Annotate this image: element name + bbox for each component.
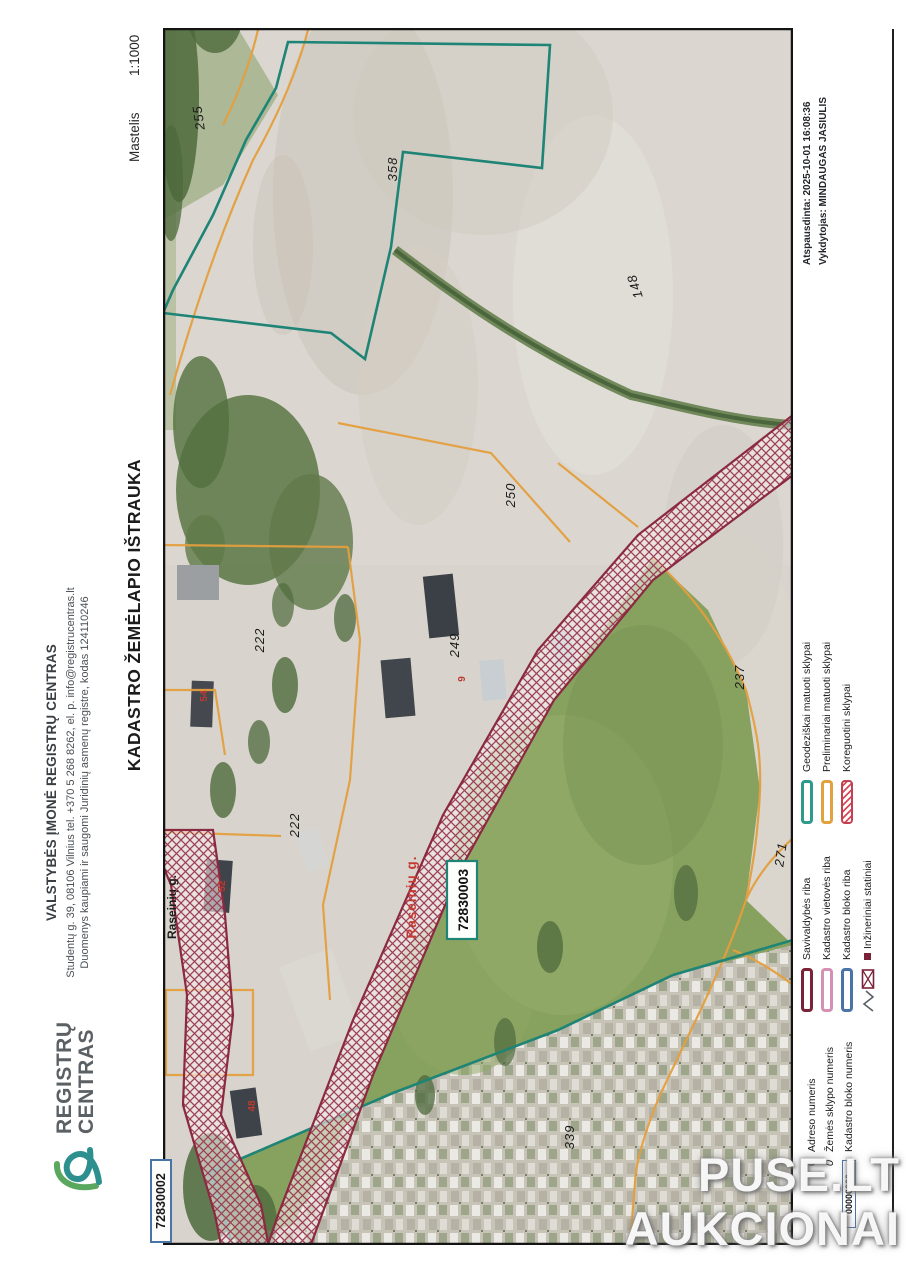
legend-inzineriniai: Inžineriniai statiniai [861,860,875,1012]
block-id-current-text: 72830003 [455,869,471,932]
address-label: 9 [457,676,468,682]
registru-centras-logo-icon [50,1142,102,1194]
parcel-label: 237 [732,665,747,691]
savivaldybes-riba-swatch [801,968,813,1012]
legend-preliminariai: Preliminariai matuoti sklypai [821,642,833,824]
logo-text: REGISTRŲ CENTRAS [54,1021,98,1134]
legend-geodeziskai: Geodeziškai matuoti sklypai [801,642,813,824]
block-id-neighbor: 72830002 [150,1159,172,1243]
watermark: PUSE.LT AUKCIONAI [625,1148,900,1256]
parcel-label: 339 [562,1125,577,1150]
legend-adreso-label: Adreso numeris [806,1078,818,1152]
preliminariai-label: Preliminariai matuoti sklypai [821,642,833,772]
block-id-neighbor-text: 72830002 [154,1173,168,1229]
legend-koreguotini: Koreguotini sklypai [841,684,853,824]
print-info: Atspausdinta: 2025-10-01 16:08:36 Vykdyt… [800,97,831,265]
address-label: 54 [199,690,210,702]
savivaldybes-riba-label: Savivaldybės riba [801,878,813,960]
inzineriniai-text: Inžineriniai statiniai [862,860,874,949]
legend-savivaldybes-riba: Savivaldybės riba [801,878,813,1012]
operator-name: Vykdytojas: MINDAUGAS JASIULIS [816,97,832,265]
inzineriniai-label: Inžineriniai statiniai [862,860,874,960]
parcel-label: 250 [503,483,518,509]
block-id-current: 72830003 [447,861,477,939]
screenshot-root: { "logo": {"line1": "REGISTRŲ", "line2":… [0,0,906,1280]
legend-bloko-riba: Kadastro bloko riba [841,870,853,1012]
koreguotini-swatch [841,780,853,824]
cadastral-map: 255 358 148 250 249 237 222 222 271 339 … [163,28,793,1245]
scale-value: 1:1000 [127,35,142,76]
legend-bottom-rule [892,29,894,1245]
company-registry-note: Duomenys kaupiami ir saugomi Juridinių a… [78,560,92,1005]
building-square-icon [864,953,871,960]
page-title: KADASTRO ŽEMĖLAPIO IŠTRAUKA [124,450,145,780]
legend-vietoves-riba: Kadastro vietovės riba [821,856,833,1012]
address-label: 52 [217,880,228,892]
street-label-black: Raseinių g. [165,875,179,939]
company-header: VALSTYBĖS ĮMONĖ REGISTRŲ CENTRAS Student… [44,560,92,1005]
address-label: 48 [247,1100,258,1112]
rotated-sheet: REGISTRŲ CENTRAS VALSTYBĖS ĮMONĖ REGISTR… [0,0,906,1280]
watermark-line1: PUSE.LT [625,1148,900,1202]
legend-sklypo-label: Žemės sklypo numeris [824,1047,836,1152]
koreguotini-label: Koreguotini sklypai [841,684,853,772]
parcel-label: 249 [447,633,462,659]
scale-label: Mastelis [127,112,142,162]
vietoves-riba-label: Kadastro vietovės riba [821,856,833,960]
street-label-red: Raseinių g. [404,855,419,938]
company-name: VALSTYBĖS ĮMONĖ REGISTRŲ CENTRAS [44,560,59,1005]
bloko-riba-swatch [841,968,853,1012]
parcel-label: 222 [287,813,302,839]
logo-line1: REGISTRŲ [54,1021,76,1134]
parcel-label: 222 [252,628,267,654]
logo-line2: CENTRAS [76,1021,98,1134]
registru-centras-logo: REGISTRŲ CENTRAS [50,1021,102,1194]
parcel-label: 358 [385,157,400,182]
bloko-riba-label: Kadastro bloko riba [841,870,853,960]
geodeziskai-swatch [801,780,813,824]
geodeziskai-label: Geodeziškai matuoti sklypai [801,642,813,772]
printed-timestamp: Atspausdinta: 2025-10-01 16:08:36 [800,97,816,265]
watermark-line2: AUKCIONAI [625,1202,900,1256]
vietoves-riba-swatch [821,968,833,1012]
legend-bloko-label: Kadastro bloko numeris [843,1042,855,1152]
preliminariai-swatch [821,780,833,824]
inzineriniai-symbol [861,968,875,1012]
company-address: Studentų g. 39, 08106 Vilnius tel. +370 … [64,560,78,1005]
